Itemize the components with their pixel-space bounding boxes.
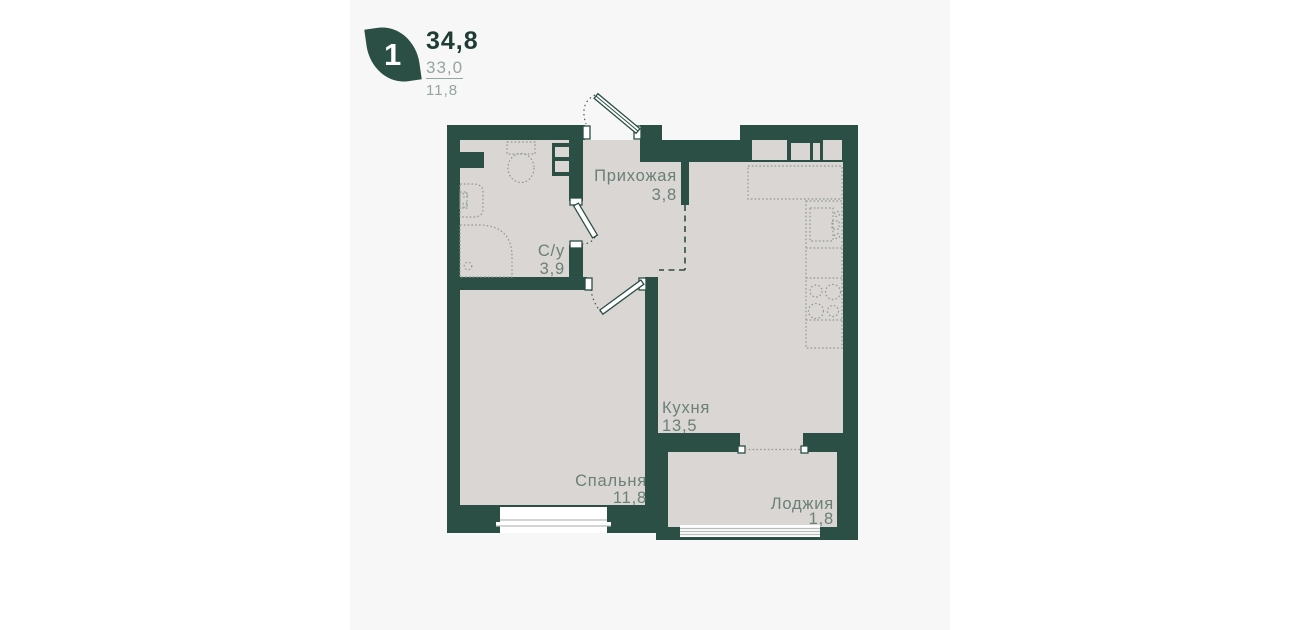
room-label-bathroom: С/у xyxy=(538,242,565,260)
room-area-kitchen: 13,5 xyxy=(662,417,697,435)
wall-top-bath xyxy=(447,125,585,140)
door-leaf-line xyxy=(596,96,638,131)
room-area-bathroom: 3,9 xyxy=(540,260,565,278)
bath-niche xyxy=(555,161,569,172)
wall-kitchen-bottom-right xyxy=(803,433,843,452)
wall-loggia-left xyxy=(656,452,668,540)
room-label-hallway: Прихожая xyxy=(594,167,677,185)
wall-entry-right xyxy=(640,125,662,162)
vent-shaft xyxy=(813,143,820,160)
door-jamb xyxy=(583,126,590,139)
room-area-loggia: 1,8 xyxy=(809,510,834,528)
room-area-bedroom: 11,8 xyxy=(613,489,647,507)
wall-right xyxy=(843,125,858,452)
floorplan-panel: 1 34,8 33,0 11,8 xyxy=(350,0,950,630)
vent-shaft xyxy=(752,140,787,160)
wall-bath-right-lower xyxy=(569,245,583,278)
wall-divider-stub xyxy=(681,162,689,205)
vent-shaft xyxy=(823,140,842,160)
wall-left xyxy=(447,125,460,533)
wall-top-step xyxy=(660,140,742,162)
door-jamb xyxy=(801,446,808,453)
floor-left-block xyxy=(460,140,658,505)
room-area-hallway: 3,8 xyxy=(652,186,677,204)
vent-shaft xyxy=(791,143,810,160)
door-jamb xyxy=(585,278,592,290)
wall-bath-bottom xyxy=(447,277,587,290)
door-jamb xyxy=(570,241,582,248)
door-jamb xyxy=(738,446,745,453)
room-label-kitchen: Кухня xyxy=(662,399,710,417)
floorplan-page: 1 34,8 33,0 11,8 xyxy=(0,0,1301,630)
wall-bath-stub xyxy=(458,152,484,168)
floorplan-drawing: Прихожая 3,8 С/у 3,9 Кухня 13,5 Спальня … xyxy=(350,0,950,630)
entrance-door-arc xyxy=(584,95,595,124)
wall-kitchen-bottom-left xyxy=(645,433,740,452)
bath-niche xyxy=(555,147,569,157)
room-label-bedroom: Спальня xyxy=(575,472,647,490)
